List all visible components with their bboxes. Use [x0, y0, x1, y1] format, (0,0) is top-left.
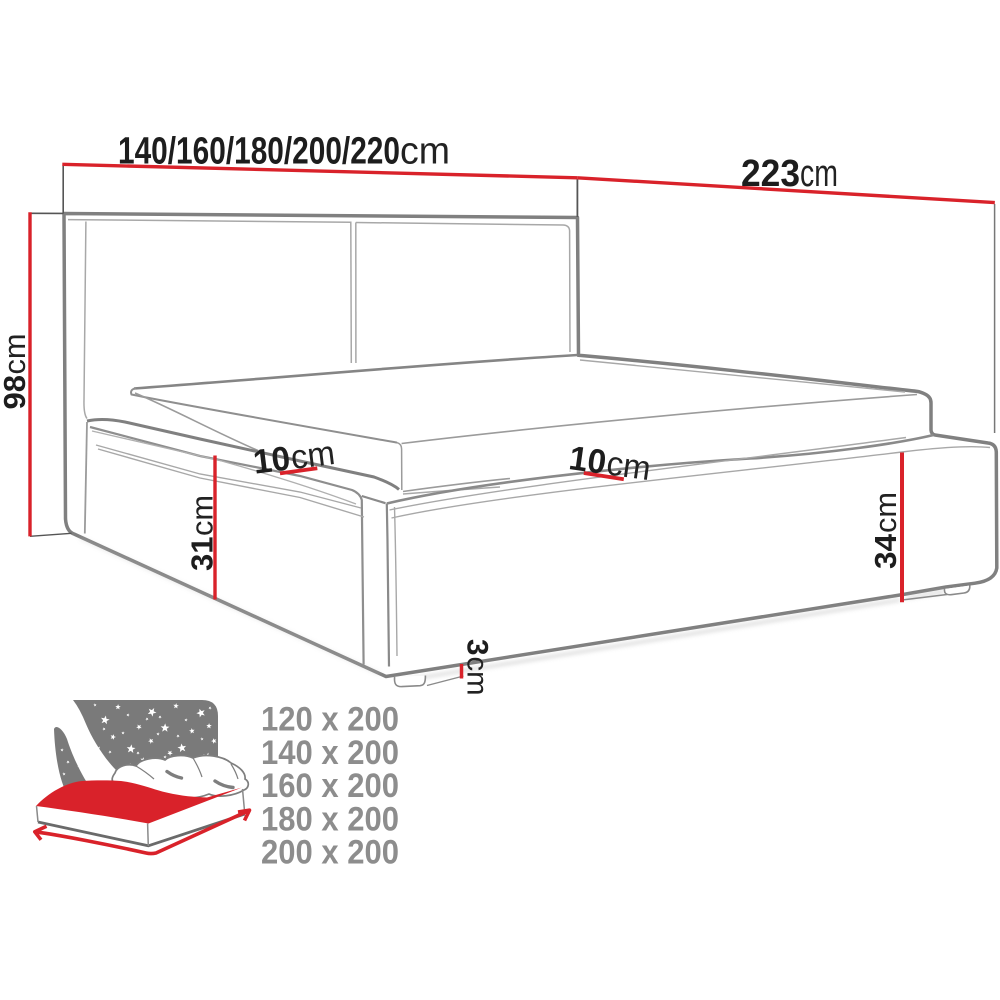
svg-text:cm: cm — [400, 131, 450, 173]
svg-text:200 x 200: 200 x 200 — [261, 834, 399, 872]
svg-text:10: 10 — [251, 440, 292, 482]
svg-text:cm: cm — [461, 657, 494, 696]
svg-text:3: 3 — [461, 639, 494, 656]
svg-text:cm: cm — [604, 444, 653, 488]
svg-text:98: 98 — [0, 375, 32, 410]
svg-text:cm: cm — [868, 492, 903, 533]
svg-text:10: 10 — [567, 439, 609, 482]
svg-text:cm: cm — [184, 495, 219, 536]
svg-text:31: 31 — [184, 537, 219, 572]
svg-text:223: 223 — [741, 153, 800, 195]
svg-text:34: 34 — [868, 533, 903, 569]
svg-text:160 x 200: 160 x 200 — [261, 767, 399, 805]
svg-text:120 x 200: 120 x 200 — [261, 701, 399, 739]
svg-text:cm: cm — [289, 434, 337, 477]
svg-text:140/160/180/200/220: 140/160/180/200/220 — [118, 131, 400, 173]
svg-text:cm: cm — [800, 153, 838, 195]
svg-text:cm: cm — [0, 334, 32, 375]
